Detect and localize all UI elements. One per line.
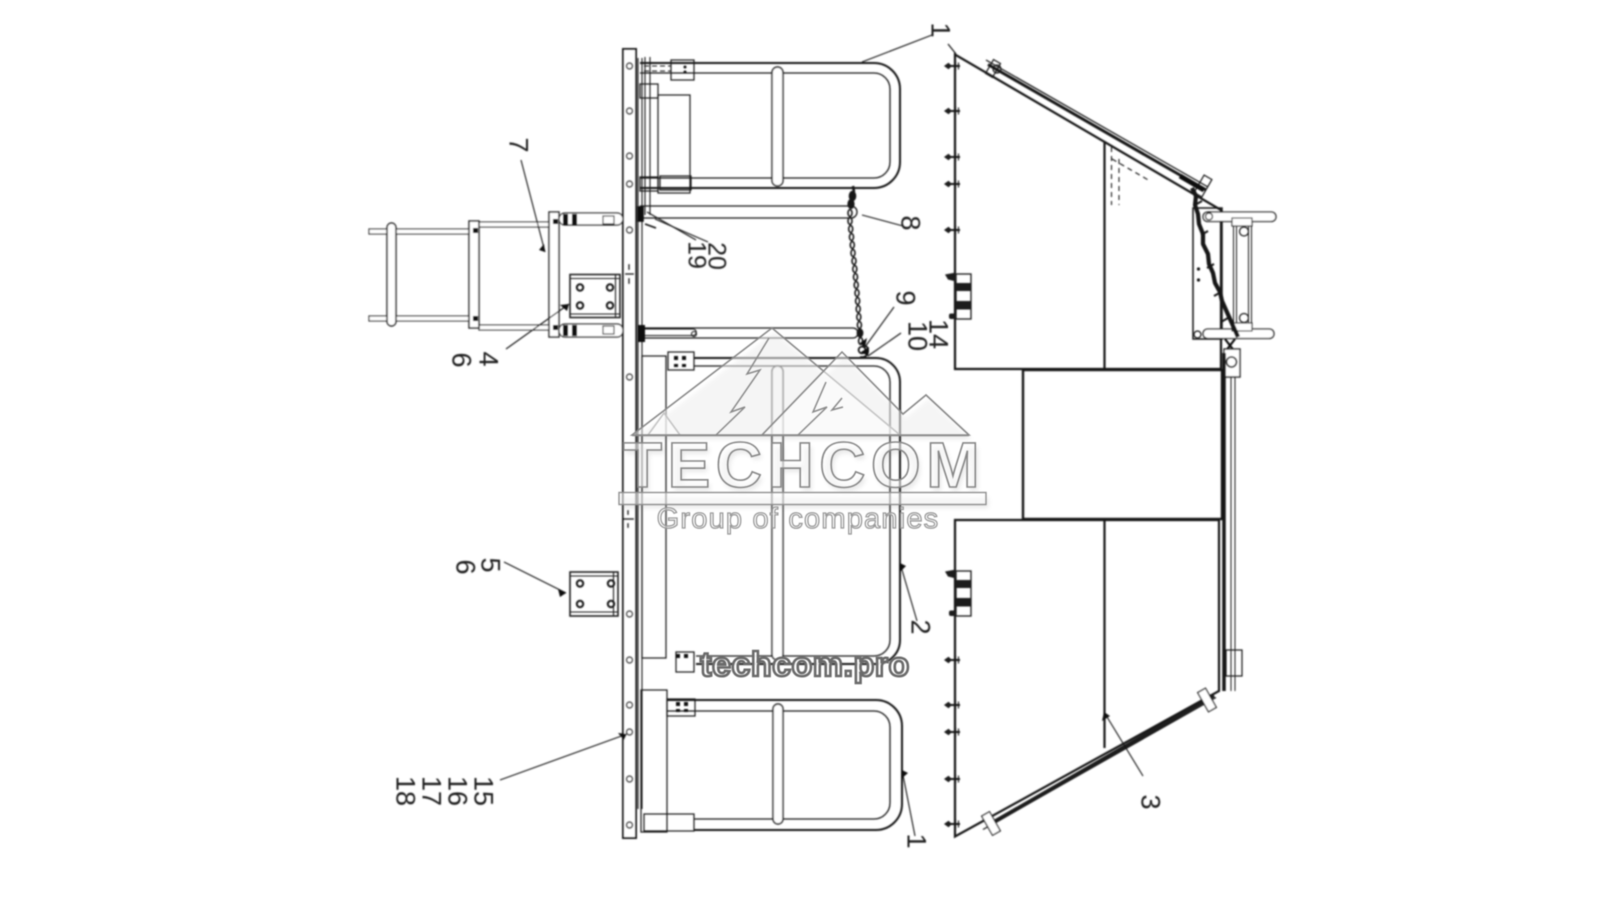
- svg-text:7: 7: [504, 137, 534, 152]
- svg-text:6: 6: [447, 352, 477, 367]
- svg-text:4: 4: [474, 351, 504, 366]
- svg-text:6: 6: [451, 559, 481, 574]
- svg-text:3: 3: [1136, 794, 1166, 809]
- svg-text:8: 8: [896, 215, 926, 230]
- svg-text:14: 14: [924, 319, 954, 349]
- svg-text:1: 1: [902, 833, 932, 848]
- svg-text:Group of companies: Group of companies: [657, 503, 940, 535]
- svg-text:techcom.pro: techcom.pro: [700, 646, 910, 684]
- svg-text:9: 9: [891, 290, 921, 305]
- svg-text:TECHCOM: TECHCOM: [623, 429, 985, 501]
- svg-text:2: 2: [906, 619, 936, 634]
- svg-text:18: 18: [391, 776, 421, 806]
- svg-text:1: 1: [926, 22, 956, 37]
- svg-text:20: 20: [702, 242, 730, 270]
